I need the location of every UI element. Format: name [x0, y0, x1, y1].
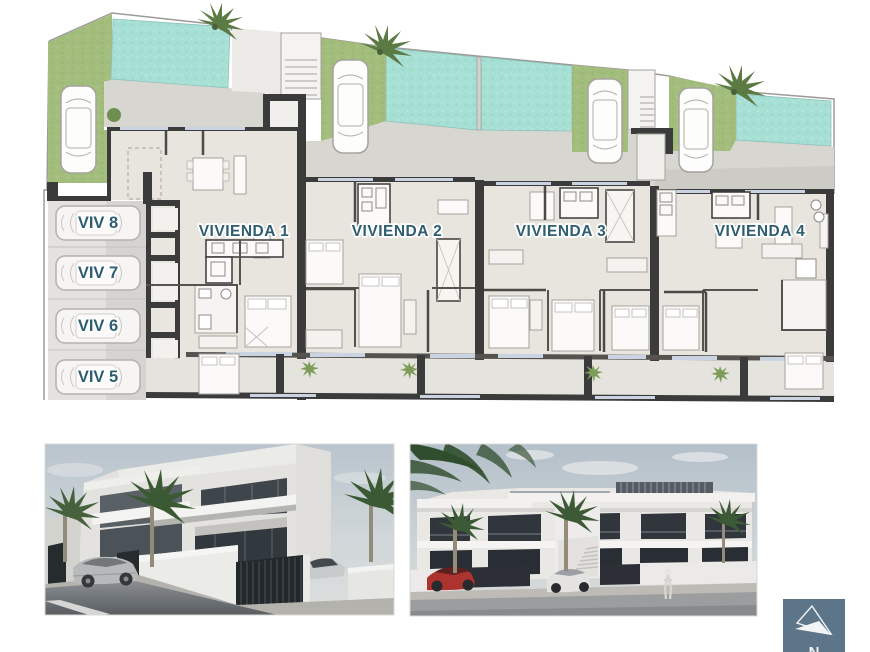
svg-text:VIVIENDA 4: VIVIENDA 4	[715, 223, 806, 240]
svg-text:VIVIENDA 1: VIVIENDA 1	[199, 223, 290, 240]
svg-text:VIV 6: VIV 6	[78, 317, 118, 335]
svg-text:VIVIENDA 2: VIVIENDA 2	[352, 223, 443, 240]
svg-text:VIV 5: VIV 5	[78, 368, 118, 386]
svg-text:VIV 7: VIV 7	[78, 264, 118, 282]
svg-text:VIVIENDA 3: VIVIENDA 3	[516, 223, 607, 240]
svg-text:VIV 8: VIV 8	[78, 214, 118, 232]
svg-text:N: N	[809, 644, 820, 652]
